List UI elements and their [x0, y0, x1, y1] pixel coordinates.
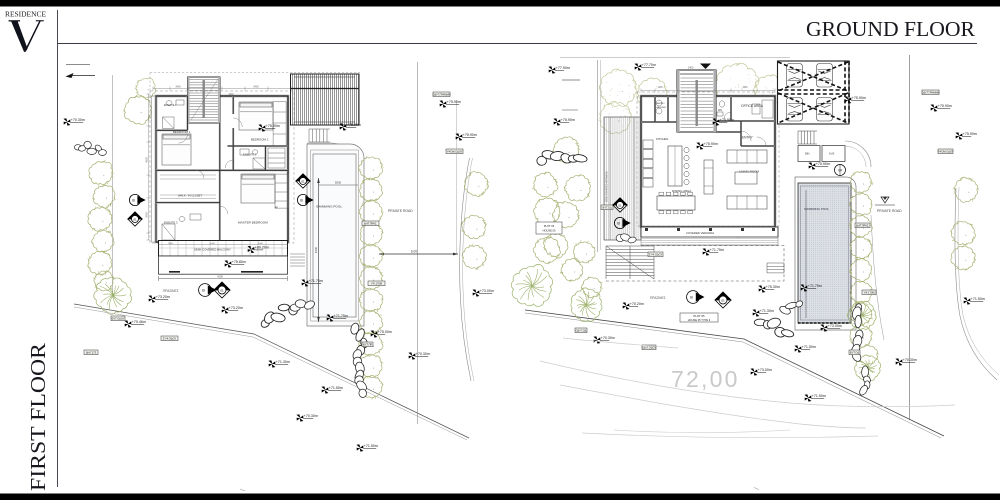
svg-text:4040: 4040: [258, 243, 264, 245]
svg-text:+75.90m: +75.90m: [852, 96, 866, 100]
svg-text:+75.30m: +75.30m: [766, 285, 780, 289]
svg-text:BEDROOM 1: BEDROOM 1: [173, 130, 191, 134]
svg-text:PANTRY: PANTRY: [656, 102, 665, 105]
svg-text:01: 01: [301, 179, 305, 183]
svg-text:01: 01: [618, 203, 622, 207]
svg-text:+75.90m: +75.90m: [720, 118, 734, 122]
svg-text:+71.50m: +71.50m: [812, 394, 826, 398]
svg-text:+73.00m: +73.00m: [828, 324, 842, 328]
svg-text:PLOT 05: PLOT 05: [544, 224, 555, 228]
svg-text:OFFICE AREA: OFFICE AREA: [741, 104, 764, 108]
svg-text:SWIMMING POOL: SWIMMING POOL: [804, 207, 829, 211]
svg-text:+75.90m: +75.90m: [816, 162, 830, 166]
svg-text:ENSUITE 2: ENSUITE 2: [243, 153, 257, 157]
svg-text:+71.75m: +71.75m: [309, 279, 323, 283]
svg-text:WC: WC: [718, 109, 722, 112]
svg-text:+75.90m: +75.90m: [963, 132, 977, 136]
svg-text:ENSUITE 1: ENSUITE 1: [164, 104, 177, 107]
svg-text:04: 04: [838, 169, 842, 173]
svg-text:BEDROOM 2: BEDROOM 2: [251, 138, 269, 142]
svg-text:+75.90m: +75.90m: [347, 123, 361, 127]
svg-text:+75.80m: +75.80m: [232, 260, 246, 264]
svg-text:+75.90m: +75.90m: [266, 124, 280, 128]
svg-text:+77.90m: +77.90m: [556, 66, 570, 70]
svg-text:ΥΨΟΜ.ΟΔΟΥ: ΥΨΟΜ.ΟΔΟΥ: [937, 149, 953, 153]
svg-text:ΦΥΤ.ΟΔ: ΦΥΤ.ΟΔ: [602, 205, 612, 209]
svg-text:+73.20m: +73.20m: [229, 306, 243, 310]
svg-text:HOUSE 05 TYPE II: HOUSE 05 TYPE II: [688, 318, 711, 322]
svg-text:4040: 4040: [210, 243, 216, 245]
svg-text:ENSUITE 3: ENSUITE 3: [164, 221, 178, 225]
svg-text:ΣΥΨ.ΟΔΟΥ: ΣΥΨ.ΟΔΟΥ: [163, 336, 177, 340]
svg-text:+75.90m: +75.90m: [463, 133, 477, 137]
svg-text:3400: 3400: [175, 86, 181, 89]
svg-text:+75.90m: +75.90m: [938, 104, 952, 108]
svg-text:GROUND FLOOR: GROUND FLOOR: [806, 17, 976, 41]
svg-text:+71.75m: +71.75m: [334, 314, 348, 318]
svg-text:SWIMMING POOL: SWIMMING POOL: [316, 205, 342, 209]
svg-text:+71.50m: +71.50m: [364, 444, 378, 448]
svg-text:+71.50m: +71.50m: [802, 345, 816, 349]
svg-text:+71.30m: +71.30m: [760, 309, 774, 313]
svg-text:4100: 4100: [217, 275, 223, 279]
svg-text:+71.50m: +71.50m: [329, 386, 343, 390]
svg-text:LIVING ROOM: LIVING ROOM: [739, 170, 760, 174]
svg-text:ΥΨ.170Μ: ΥΨ.170Μ: [863, 290, 874, 294]
svg-text:HOUSE 05: HOUSE 05: [543, 229, 556, 233]
svg-text:+70.30m: +70.30m: [903, 358, 917, 362]
svg-text:01: 01: [133, 217, 137, 221]
svg-text:+70.30m: +70.30m: [304, 414, 318, 418]
svg-text:DINING AREA: DINING AREA: [672, 189, 691, 193]
svg-text:LAUNDRY: LAUNDRY: [656, 106, 667, 109]
svg-text:WALK - IN CLOSET: WALK - IN CLOSET: [178, 193, 202, 197]
svg-text:MASTER BEDROOM: MASTER BEDROOM: [238, 221, 268, 225]
svg-text:+75.90m: +75.90m: [447, 100, 461, 104]
svg-text:+70.30m: +70.30m: [416, 352, 430, 356]
svg-text:ΥΨΟΜ.ΟΔΟΥ: ΥΨΟΜ.ΟΔΟΥ: [446, 149, 462, 153]
svg-text:ΦΥΤ.ΟΔ: ΦΥΤ.ΟΔ: [850, 350, 860, 354]
svg-text:FIRST FLOOR: FIRST FLOOR: [26, 342, 50, 491]
svg-text:ΔΙΑΤ.ΠΡΑΣ.: ΔΙΑΤ.ΠΡΑΣ.: [856, 223, 870, 227]
svg-text:ΣΥΨ.ΟΔΟΥ: ΣΥΨ.ΟΔΟΥ: [649, 252, 663, 256]
svg-text:01: 01: [721, 298, 725, 302]
svg-text:+70.46m: +70.46m: [132, 320, 146, 324]
svg-text:SEMI-COVERED BALCONY: SEMI-COVERED BALCONY: [194, 248, 231, 252]
svg-text:+71.50m: +71.50m: [971, 297, 985, 301]
svg-text:9100: 9100: [314, 246, 318, 253]
svg-text:2400: 2400: [688, 67, 694, 70]
svg-text:4600: 4600: [146, 157, 149, 163]
svg-text:COVERED VERANDA: COVERED VERANDA: [686, 231, 714, 235]
svg-text:ΟΔΥΓ.ΟΔ: ΟΔΥΓ.ΟΔ: [576, 328, 587, 332]
svg-text:RESIDENCE: RESIDENCE: [5, 11, 47, 19]
svg-text:+71.75m: +71.75m: [710, 248, 724, 252]
svg-text:PLOT 05: PLOT 05: [693, 314, 705, 318]
svg-text:ΔΙΑΤ.ΠΡΑΣ.: ΔΙΑΤ.ΠΡΑΣ.: [364, 221, 378, 225]
svg-text:+73.00m: +73.00m: [758, 368, 772, 372]
svg-text:BIN: BIN: [805, 152, 809, 156]
svg-text:+70.20m: +70.20m: [630, 302, 644, 306]
svg-text:2450: 2450: [168, 243, 174, 245]
svg-text:ΠΡΑΣΙΝΕΣ: ΠΡΑΣΙΝΕΣ: [650, 296, 666, 300]
svg-text:+75.00m: +75.00m: [378, 330, 392, 334]
svg-text:5450: 5450: [253, 86, 259, 89]
svg-text:ΦΥΤ.ΠΡ: ΦΥΤ.ΠΡ: [363, 342, 373, 346]
svg-text:ΔΙΑΓ.173: ΔΙΑΓ.173: [86, 350, 97, 354]
svg-text:6.00: 6.00: [411, 250, 417, 254]
svg-text:ΦΥΤ.ΟΔΟΥ: ΦΥΤ.ΟΔΟΥ: [111, 316, 124, 320]
svg-text:ΥΨ.170Μ: ΥΨ.170Μ: [371, 281, 382, 285]
svg-text:+80.20m: +80.20m: [255, 246, 269, 250]
svg-text:PRIVATE ROAD: PRIVATE ROAD: [877, 209, 902, 213]
svg-text:+75.90m: +75.90m: [561, 118, 575, 122]
svg-text:1400: 1400: [657, 87, 663, 89]
svg-text:ΟΔΥΓ.ΓΡΑΜΜΗ: ΟΔΥΓ.ΓΡΑΜΜΗ: [433, 92, 451, 96]
svg-text:01: 01: [220, 288, 224, 292]
svg-text:3400: 3400: [146, 212, 149, 218]
svg-text:ΟΔΥΓ.ΓΡΑΜΜΗ: ΟΔΥΓ.ΓΡΑΜΜΗ: [922, 90, 940, 94]
svg-text:5500: 5500: [335, 181, 342, 185]
svg-text:4600: 4600: [742, 87, 748, 89]
svg-text:4400: 4400: [228, 94, 234, 96]
svg-text:+77.70m: +77.70m: [642, 63, 656, 67]
svg-text:+75.90m: +75.90m: [704, 142, 718, 146]
svg-text:AUX: AUX: [829, 152, 835, 156]
svg-text:SEMI COVERED VERANDA: SEMI COVERED VERANDA: [606, 171, 609, 202]
svg-text:+70.30m: +70.30m: [601, 336, 615, 340]
svg-text:+71.75m: +71.75m: [808, 284, 822, 288]
svg-text:PRIVATE ROAD: PRIVATE ROAD: [388, 209, 413, 213]
svg-text:+71.30m: +71.30m: [276, 360, 290, 364]
svg-text:ENTRY: ENTRY: [742, 136, 754, 140]
svg-text:KITCHEN: KITCHEN: [656, 137, 668, 141]
svg-text:72,00: 72,00: [671, 366, 740, 392]
svg-text:+70.30m: +70.30m: [71, 118, 85, 122]
svg-text:+73.00m: +73.00m: [480, 289, 494, 293]
svg-text:+73.20m: +73.20m: [156, 295, 170, 299]
svg-text:ΠΡΑΣΙΝΕΣ: ΠΡΑΣΙΝΕΣ: [163, 289, 179, 293]
